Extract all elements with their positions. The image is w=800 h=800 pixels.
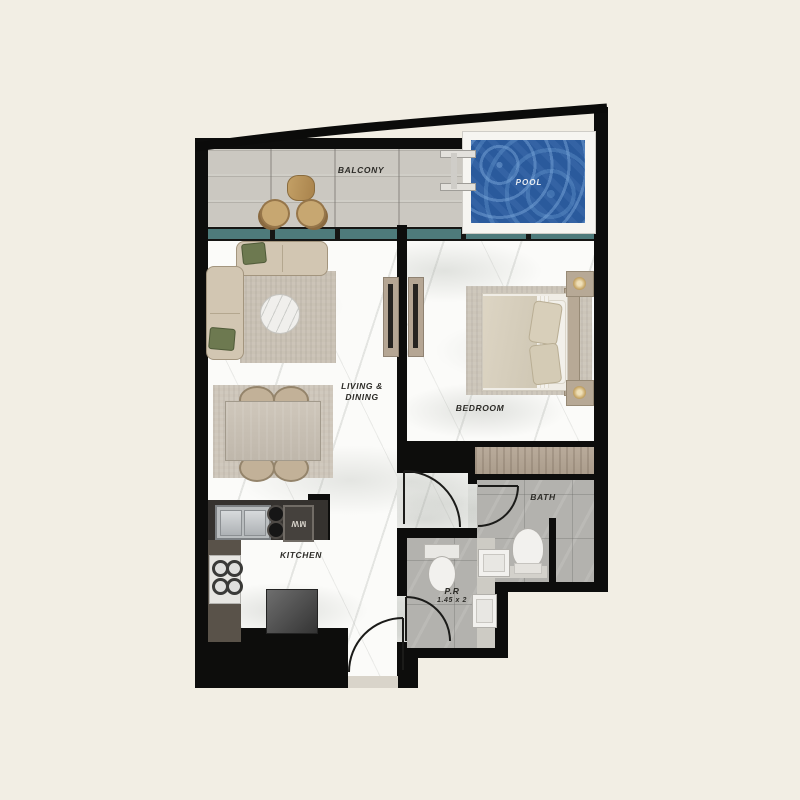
powder-room-label-text: P.R [437,587,467,596]
powder-room-dimensions: 1.45 x 2 [437,596,467,605]
living-dining-label-line2: DINING [341,392,383,403]
bedroom-door [404,471,460,527]
entrance-door [349,618,403,672]
living-dining-label: LIVING & DINING [341,381,383,403]
bedroom-label: BEDROOM [456,403,505,414]
powder-room-label: P.R 1.45 x 2 [437,587,467,605]
balcony-label: BALCONY [338,165,384,176]
bath-label: BATH [530,492,555,503]
floor-plan-canvas: MW BALCONY POOL LIVING & DINING BEDROOM … [0,0,800,800]
pool-label: POOL [516,177,543,188]
kitchen-label: KITCHEN [280,550,322,561]
living-dining-label-line1: LIVING & [341,381,383,392]
bath-door [478,486,518,526]
door-swing-arcs [0,0,800,800]
